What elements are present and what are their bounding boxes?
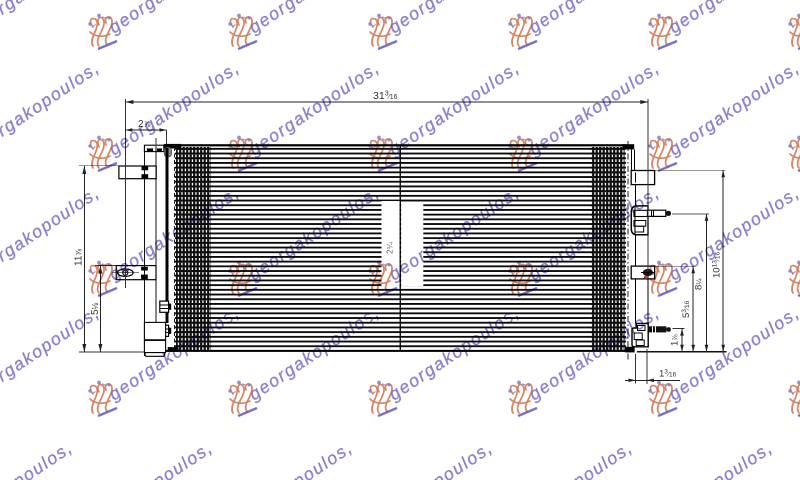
svg-text:11⅞: 11⅞ [74, 249, 85, 266]
svg-text:8¼: 8¼ [694, 278, 705, 290]
svg-text:2¼: 2¼ [385, 241, 395, 254]
svg-text:1⅞: 1⅞ [670, 334, 681, 346]
